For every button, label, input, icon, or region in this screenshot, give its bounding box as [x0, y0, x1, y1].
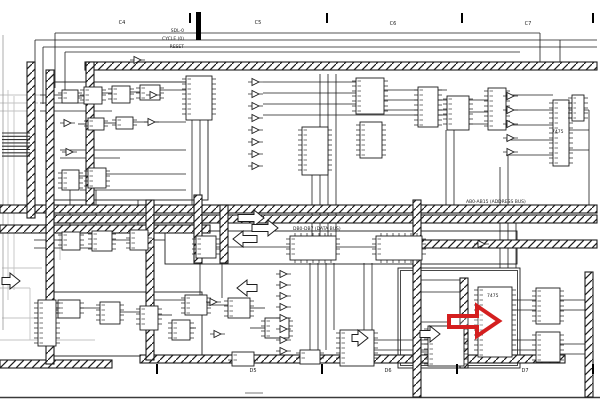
ic-body — [84, 87, 102, 104]
ic-body — [140, 306, 158, 330]
gate-triangle — [148, 119, 155, 126]
ic-block — [88, 231, 116, 251]
gate-triangle — [507, 149, 514, 156]
ic-block — [168, 320, 194, 340]
ic-body — [88, 118, 104, 130]
ic-block — [532, 288, 564, 324]
ic-body — [536, 332, 560, 362]
gate-symbol — [144, 119, 159, 126]
bus-bar-rect — [220, 205, 228, 263]
gate-symbol — [503, 149, 518, 156]
ic-body — [62, 90, 78, 103]
bus-bar-rect — [85, 62, 597, 70]
bus-bar-rect — [413, 200, 421, 397]
gate-symbol — [276, 348, 291, 355]
gate-triangle — [252, 127, 259, 134]
zone-label: C6 — [390, 21, 397, 27]
zone-label: C4 — [119, 20, 126, 26]
schematic-canvas: SDL-0CYCLE (0)RESETAB0-AB15 (ADDRESS BUS… — [0, 0, 600, 400]
gate-symbol — [248, 139, 263, 146]
ic-body — [447, 96, 469, 130]
gate-symbol — [248, 79, 263, 86]
ic-block — [286, 233, 340, 263]
gate-triangle — [252, 91, 259, 98]
bus-bar — [413, 200, 421, 397]
bus-bar-rect — [0, 360, 112, 368]
bus-bar — [146, 200, 154, 360]
gate-triangle — [507, 93, 514, 100]
ic-block — [84, 118, 108, 130]
signal-label: SDL-0 — [171, 28, 184, 34]
zone-label: C7 — [525, 21, 532, 27]
ic-body — [418, 87, 438, 127]
ic-block — [568, 95, 588, 121]
gate-symbol — [276, 271, 291, 278]
ic-body — [112, 86, 130, 103]
gate-triangle — [280, 271, 287, 278]
gate-triangle — [252, 139, 259, 146]
gate-symbol — [503, 135, 518, 142]
zone-label: D5 — [249, 368, 256, 374]
zone-label: C5 — [255, 20, 262, 26]
ic-block — [224, 298, 254, 318]
bus-bar — [0, 205, 597, 213]
ic-block — [296, 350, 324, 364]
gate-triangle — [252, 163, 259, 170]
zone-tick — [321, 364, 323, 374]
ic-block — [126, 230, 152, 250]
ic-block — [298, 127, 332, 175]
ic-block — [84, 168, 110, 188]
zone-tick — [156, 364, 158, 374]
bus-bar — [48, 215, 597, 223]
bus-flow-arrow — [233, 231, 257, 247]
gate-symbol — [276, 282, 291, 289]
gate-symbol — [248, 115, 263, 122]
gate-triangle — [280, 304, 287, 311]
zone-label: D6 — [384, 368, 391, 374]
ic-block — [372, 233, 426, 263]
gate-triangle — [210, 299, 217, 306]
gate-symbol — [276, 293, 291, 300]
gate-symbol — [62, 149, 77, 156]
zone-tick — [461, 13, 463, 23]
gate-symbol — [248, 91, 263, 98]
ic-block — [443, 96, 473, 130]
gate-triangle — [280, 293, 287, 300]
ic-block — [352, 78, 388, 114]
gate-triangle — [252, 79, 259, 86]
ic-body — [300, 350, 320, 364]
gate-symbol — [248, 151, 263, 158]
zone-label: D7 — [521, 368, 528, 374]
bus-bar-rect — [585, 272, 593, 397]
solid-bar — [196, 12, 201, 40]
ic-block — [261, 318, 293, 338]
gate-triangle — [280, 282, 287, 289]
gate-triangle — [252, 115, 259, 122]
gate-triangle — [507, 135, 514, 142]
ic-block — [58, 232, 84, 250]
bus-bar-rect — [400, 240, 597, 248]
scanned-schematic-page: SDL-0CYCLE (0)RESETAB0-AB15 (ADDRESS BUS… — [0, 0, 600, 400]
bus-bar-rect — [48, 215, 597, 223]
bus-bar — [0, 360, 112, 368]
ic-body — [116, 117, 133, 129]
ic-block — [108, 86, 134, 103]
ic-block — [182, 76, 216, 120]
gate-symbol — [210, 331, 225, 338]
ic-block — [414, 87, 442, 127]
bus-bar — [400, 240, 597, 248]
zone-tick — [189, 13, 191, 23]
ic-block — [96, 302, 124, 324]
gate-symbol — [276, 304, 291, 311]
bus-flow-arrow — [237, 280, 257, 296]
zone-tick — [592, 13, 594, 23]
signal-label: DB0-DB7 (DATA BUS) — [293, 226, 341, 232]
zone-tick — [456, 364, 458, 374]
ic-block — [34, 300, 60, 346]
ic-body — [232, 352, 254, 366]
ic-block — [532, 332, 564, 362]
ic-body — [376, 236, 422, 260]
ic-block — [356, 122, 386, 158]
ic-block — [192, 236, 220, 258]
gate-triangle — [507, 121, 514, 128]
gate-symbol — [206, 299, 221, 306]
bus-bar-rect — [0, 205, 597, 213]
gate-triangle — [252, 151, 259, 158]
gate-triangle — [66, 149, 73, 156]
ic-block — [181, 295, 211, 315]
gate-symbol — [248, 127, 263, 134]
gate-triangle — [280, 348, 287, 355]
bus-bar-rect — [146, 200, 154, 360]
signal-label: CYCLE (0) — [162, 36, 184, 42]
ic-block — [228, 352, 258, 366]
signal-label: 7475 — [487, 293, 499, 299]
ic-block — [112, 117, 137, 129]
ic-body — [302, 127, 328, 175]
ic-block — [58, 170, 83, 190]
ic-block — [80, 87, 106, 104]
zone-tick — [592, 364, 594, 374]
ic-block — [136, 306, 162, 330]
gate-symbol — [248, 103, 263, 110]
ic-body — [290, 236, 336, 260]
bus-bar — [85, 62, 597, 70]
signal-label: 7475 — [552, 129, 564, 135]
gate-symbol — [60, 120, 75, 127]
bus-flow-arrow — [2, 273, 20, 289]
signal-label: AB0-AB15 (ADDRESS BUS) — [466, 199, 526, 205]
gate-triangle — [64, 120, 71, 127]
ic-block — [58, 90, 82, 103]
gate-triangle — [507, 107, 514, 114]
gate-symbol — [248, 163, 263, 170]
ic-body — [186, 76, 212, 120]
bus-bar — [220, 205, 228, 263]
bus-bar — [585, 272, 593, 397]
gate-triangle — [252, 103, 259, 110]
gate-triangle — [214, 331, 221, 338]
zone-tick — [326, 13, 328, 23]
signal-label: RESET — [170, 44, 185, 50]
